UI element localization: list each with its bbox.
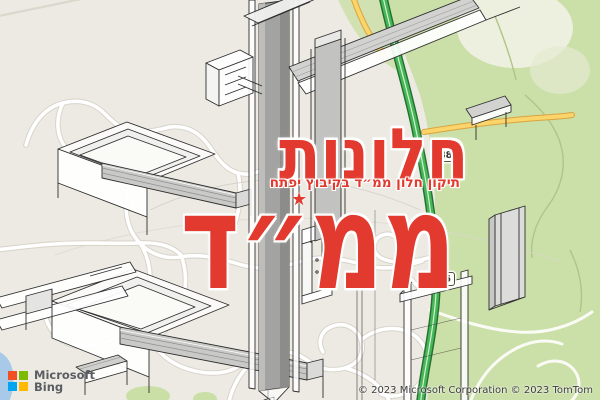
map-hero-image: 886 886 חלונות תיקון חלון ממ״ד בקיבוץ יפ… xyxy=(0,0,600,400)
map-copyright: © 2023 Microsoft Corporation © 2023 TomT… xyxy=(358,385,593,396)
bing-logo[interactable]: Microsoft Bing xyxy=(8,369,95,393)
cad-sill-right xyxy=(466,96,511,140)
microsoft-logo-icon xyxy=(8,371,28,391)
bing-logo-text: Microsoft Bing xyxy=(34,369,95,393)
cad-channel-right xyxy=(489,206,525,310)
headline-line2: ממ״ד xyxy=(181,176,456,308)
logo-bing-label: Bing xyxy=(34,381,95,393)
